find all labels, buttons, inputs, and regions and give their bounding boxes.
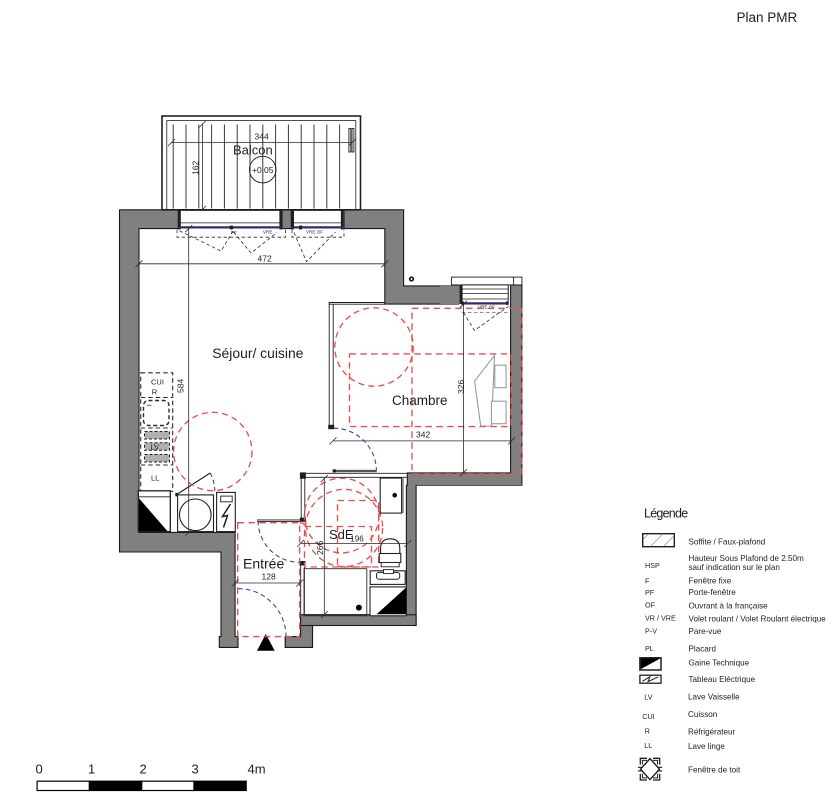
svg-text:Tableau Eléctrique: Tableau Eléctrique (689, 675, 756, 684)
svg-text:Plan PMR: Plan PMR (737, 10, 798, 25)
svg-text:LV: LV (151, 443, 160, 452)
svg-text:sauf indication sur le plan: sauf indication sur le plan (689, 563, 780, 572)
svg-text:Chambre: Chambre (392, 393, 448, 408)
svg-text:162: 162 (191, 161, 201, 175)
svg-text:VRE OF: VRE OF (306, 230, 323, 235)
svg-text:Soffite / Faux-plafond: Soffite / Faux-plafond (689, 537, 766, 546)
svg-text:Pare-vue: Pare-vue (689, 627, 722, 636)
svg-text:P-V: P-V (645, 627, 657, 636)
svg-text:Séjour/ cuisine: Séjour/ cuisine (212, 345, 303, 361)
svg-text:Entrée: Entrée (243, 556, 284, 572)
svg-text:266: 266 (315, 541, 325, 555)
svg-text:Fenêtre de toit: Fenêtre de toit (688, 766, 741, 775)
svg-text:Gaine Technique: Gaine Technique (689, 659, 750, 668)
svg-text:Balcon: Balcon (233, 143, 273, 158)
svg-text:R: R (152, 388, 158, 397)
svg-text:Lave Vaisselle: Lave Vaisselle (688, 693, 740, 702)
svg-text:Fenêtre fixe: Fenêtre fixe (689, 577, 732, 586)
svg-text:326: 326 (456, 380, 466, 394)
svg-text:3: 3 (192, 762, 199, 777)
svg-text:Hauteur Sous Plafond de 2.50m: Hauteur Sous Plafond de 2.50m (689, 554, 804, 563)
svg-text:OF: OF (645, 600, 656, 609)
svg-text:4m: 4m (248, 762, 266, 777)
svg-text:LV: LV (644, 693, 652, 702)
svg-text:196: 196 (350, 535, 364, 544)
svg-text:PL: PL (645, 644, 654, 653)
svg-text:Ouvrant à la française: Ouvrant à la française (689, 602, 769, 611)
svg-text:Légende: Légende (644, 506, 688, 520)
svg-text:Volet roulant / Volet Roulant: Volet roulant / Volet Roulant électrique (689, 614, 827, 623)
svg-text:PF: PF (231, 230, 237, 235)
svg-text:344: 344 (255, 131, 269, 141)
svg-text:Réfrigérateur: Réfrigérateur (688, 728, 736, 737)
svg-text:VR / VRE: VR / VRE (645, 613, 676, 622)
svg-text:LL: LL (644, 741, 652, 750)
svg-text:2: 2 (140, 762, 147, 777)
svg-text:472: 472 (258, 253, 272, 263)
svg-text:VRE: VRE (263, 230, 272, 235)
svg-text:Placard: Placard (689, 645, 716, 654)
svg-text:1: 1 (88, 762, 95, 777)
svg-text:R: R (645, 727, 650, 736)
svg-text:Porte-fenêtre: Porte-fenêtre (689, 588, 737, 597)
svg-text:Cuisson: Cuisson (688, 710, 717, 719)
svg-text:LL: LL (151, 474, 159, 483)
svg-text:584: 584 (176, 379, 186, 393)
svg-text:CUI: CUI (151, 378, 164, 387)
svg-text:PF: PF (645, 588, 655, 597)
svg-text:Lave linge: Lave linge (688, 742, 725, 751)
svg-text:342: 342 (416, 429, 430, 439)
svg-text:CUI: CUI (642, 712, 654, 721)
svg-text:0: 0 (36, 762, 43, 777)
svg-text:128: 128 (262, 571, 276, 581)
svg-text:F: F (645, 576, 650, 585)
svg-text:HSP: HSP (645, 561, 660, 570)
svg-text:+0.05: +0.05 (252, 165, 274, 175)
